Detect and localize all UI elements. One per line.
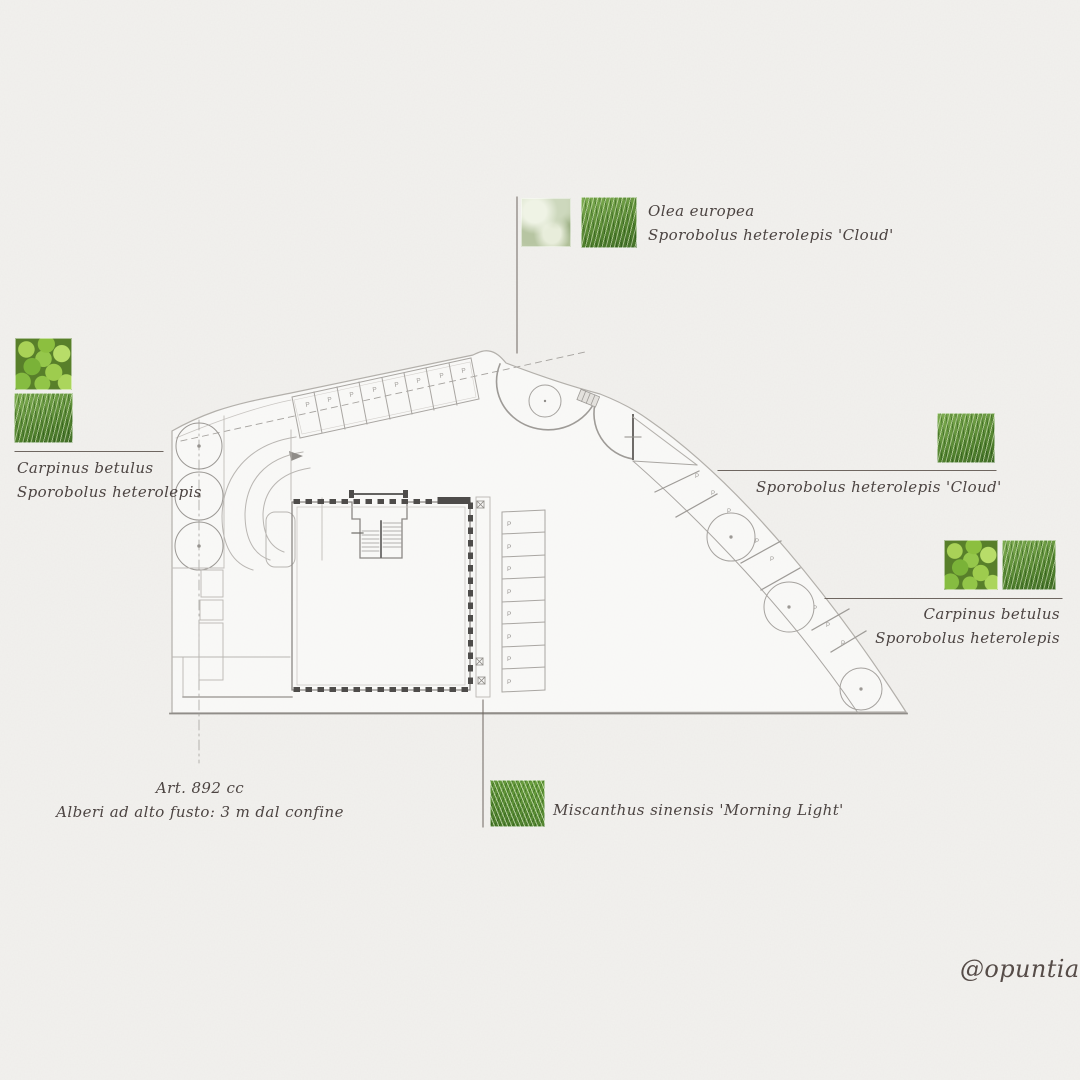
parking-letter: P <box>695 474 699 480</box>
parking-letter: P <box>507 611 511 618</box>
plant-name: Sporobolus heterolepis <box>820 626 1060 650</box>
law-reference: Art. 892 cc <box>50 776 350 800</box>
sporobolus-grass-photo <box>1002 540 1056 590</box>
plant-name: Sporobolus heterolepis 'Cloud' <box>648 223 894 247</box>
plant-name: Miscanthus sinensis 'Morning Light' <box>553 798 844 822</box>
carpinus-leaves-photo <box>944 540 998 590</box>
plant-name: Carpinus betulus <box>17 456 202 480</box>
plant-name: Olea europea <box>648 199 894 223</box>
label-olea-group: Olea europea Sporobolus heterolepis 'Clo… <box>648 199 894 247</box>
parking-letter: P <box>813 606 817 612</box>
olea-foliage-photo <box>521 198 571 247</box>
miscanthus-grass-photo <box>490 780 545 827</box>
label-cloud-group: Sporobolus heterolepis 'Cloud' <box>756 475 996 499</box>
parking-letter: P <box>507 634 511 641</box>
parking-letter: P <box>755 539 759 545</box>
law-text: Alberi ad alto fusto: 3 m dal confine <box>50 800 350 824</box>
label-miscanthus: Miscanthus sinensis 'Morning Light' <box>553 798 844 822</box>
planting-plan-poster: P P P P P P P P <box>0 0 1080 1080</box>
plant-name: Carpinus betulus <box>820 602 1060 626</box>
site-plan: P P P P P P P P <box>0 0 1080 1080</box>
parking-letter: P <box>507 566 511 573</box>
parking-letter: P <box>727 509 731 515</box>
parking-letter: P <box>507 589 511 596</box>
parking-letter: P <box>711 491 715 497</box>
label-left-group: Carpinus betulus Sporobolus heterolepis <box>17 456 202 504</box>
sporobolus-grass-photo <box>581 197 637 248</box>
sporobolus-grass-photo <box>14 393 73 443</box>
author-signature: @opuntia <box>960 955 1080 983</box>
parking-letter: P <box>770 557 774 563</box>
parking-letter: P <box>507 544 511 551</box>
parking-letter: P <box>507 656 511 663</box>
label-right-group: Carpinus betulus Sporobolus heterolepis <box>820 602 1060 650</box>
plant-name: Sporobolus heterolepis 'Cloud' <box>756 475 996 499</box>
parking-letter: P <box>507 521 511 528</box>
sporobolus-grass-photo <box>937 413 995 463</box>
parking-letter: P <box>507 679 511 686</box>
plant-name: Sporobolus heterolepis <box>17 480 202 504</box>
label-law-note: Art. 892 cc Alberi ad alto fusto: 3 m da… <box>50 776 350 824</box>
carpinus-leaves-photo <box>15 338 72 390</box>
